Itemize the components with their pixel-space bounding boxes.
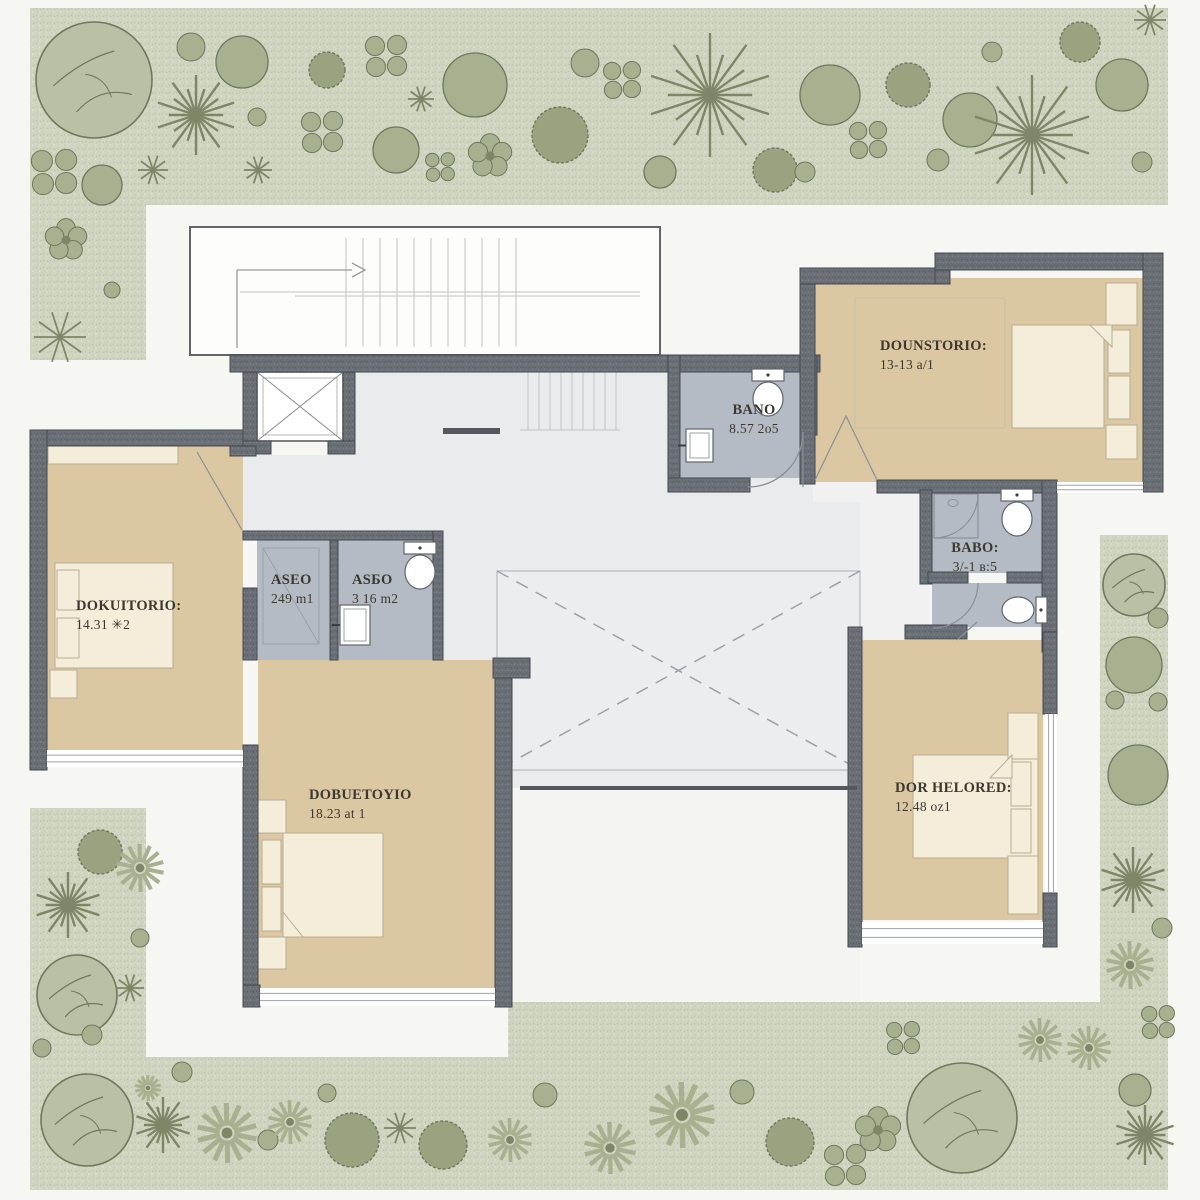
floor-plan-drawing xyxy=(0,0,1200,1200)
floor-plan-canvas: DOUNSTORIO: 13-13 a/1 BANO 8.57 2o5 ASEO… xyxy=(0,0,1200,1200)
